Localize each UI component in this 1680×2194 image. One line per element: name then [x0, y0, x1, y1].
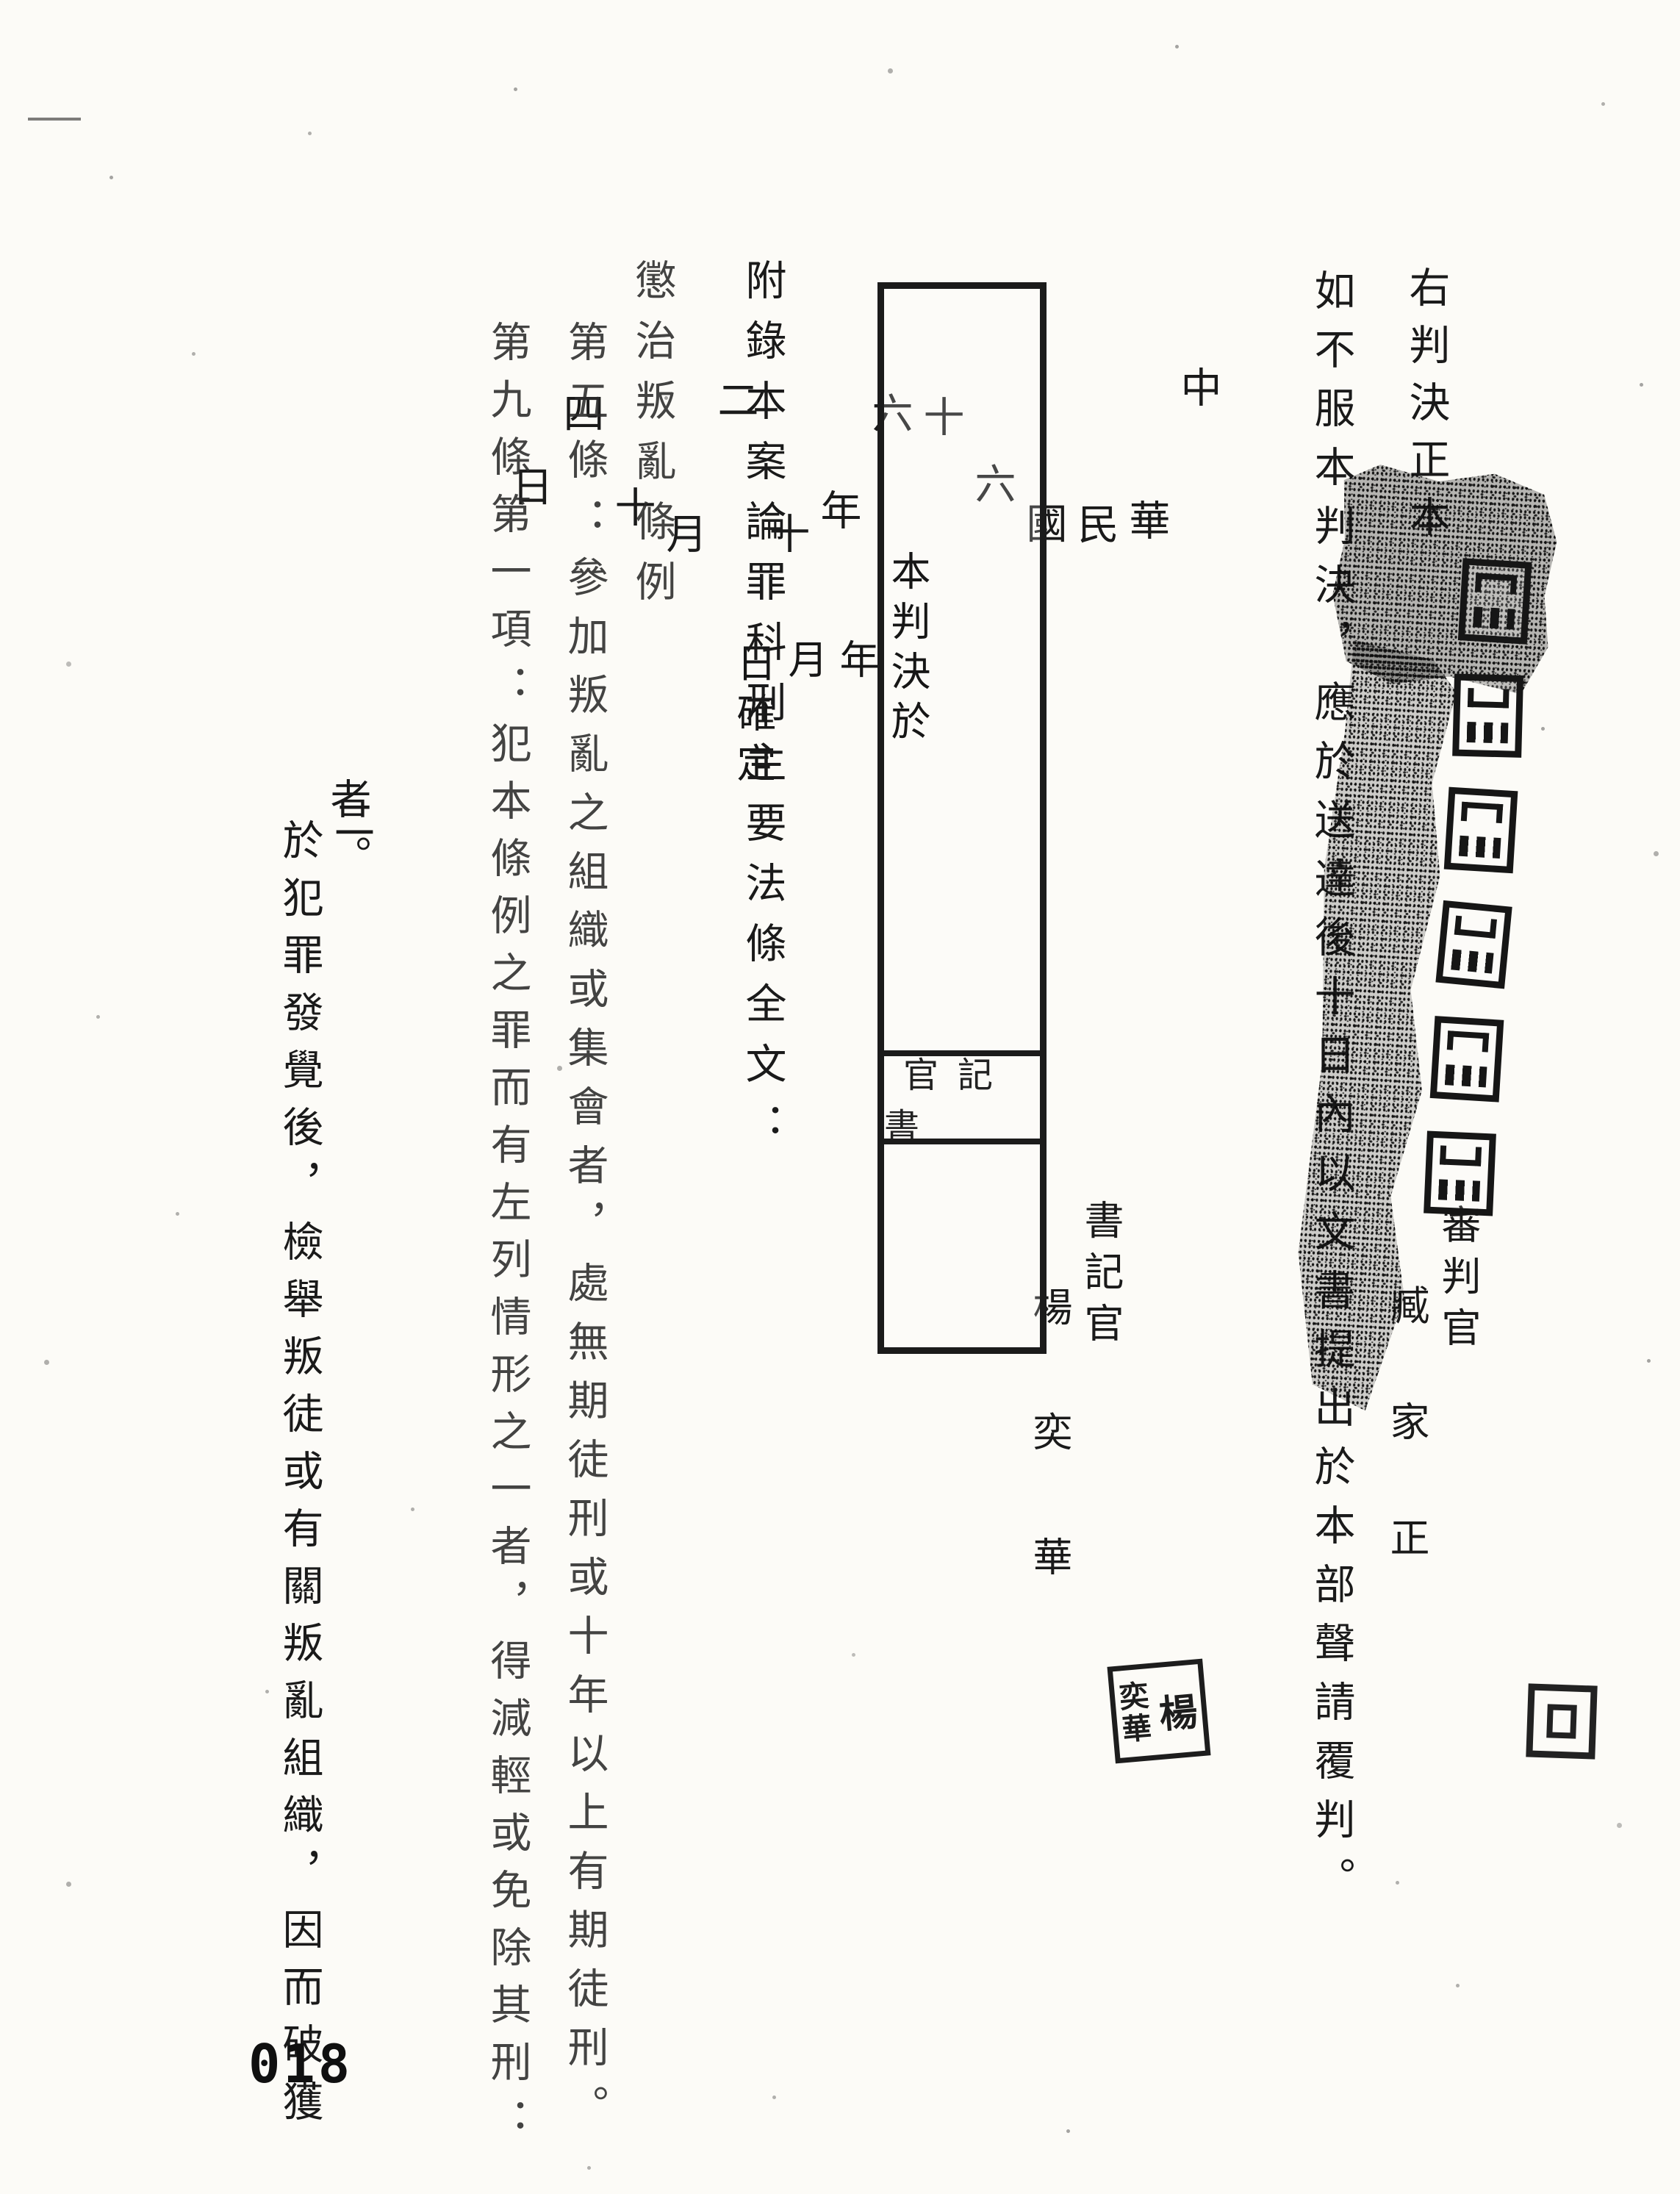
- article-9-item-2-continuation: 者。: [321, 778, 373, 892]
- judgment-date: 中 華 民 國 六 十 六 年 十 二 月 十 四 日: [1223, 270, 1274, 553]
- seal-script-glyph: [1444, 787, 1518, 874]
- article-9-intro: 第九條第一項：犯本條例之罪而有左列情形之一者，得減輕或免除其刑：: [481, 320, 533, 2155]
- finality-box: 本判決於 年 月 日確定 官記書: [877, 282, 1047, 1354]
- seal-script-glyph: [1424, 1131, 1496, 1216]
- clerk-seal-char: 楊: [1157, 1680, 1199, 1738]
- seal-script-glyph: [1435, 900, 1512, 989]
- scanned-judgment-page: { "page": { "number": "018" }, "closing"…: [0, 0, 1680, 2194]
- clerk-seal: 楊 奕 華: [1107, 1659, 1210, 1764]
- finality-month-label: 月: [781, 639, 828, 689]
- clerk-title: 書記官: [1077, 1200, 1124, 1354]
- box-clerk-label: 官記書: [884, 1059, 1040, 1136]
- article-5-text: 第五條：參加叛亂之組織或集會者，處無期徒刑或十年以上有期徒刑。: [559, 320, 610, 2143]
- clerk-seal-chars: 奕 華: [1118, 1679, 1153, 1746]
- finality-year-label: 年: [833, 639, 879, 689]
- article-9-item-2: 二 於犯罪發覺後，檢舉叛徒或有關叛亂組織，因而破獲: [376, 703, 428, 2137]
- seal-script-glyph: [1452, 674, 1523, 758]
- item-text: 於犯罪發覺後，檢舉叛徒或有關叛亂組織，因而破獲: [276, 819, 323, 2137]
- box-divider: [883, 1139, 1041, 1144]
- page-number: 018: [248, 2033, 353, 2095]
- statute-title: 懲治叛亂條例: [626, 259, 678, 620]
- date-char: 中: [1174, 366, 1221, 407]
- scan-specks: [0, 0, 2, 2]
- clerk-signature: 書記官 楊奕華: [1126, 1107, 1177, 1661]
- seal-script-glyph: [1430, 1016, 1504, 1103]
- appendix-heading: 附錄本案論罪科刑主要法條全文：: [736, 259, 788, 1163]
- clerk-seal-char: 華: [1121, 1712, 1153, 1746]
- finality-line: 本判決於 年 月 日確定: [933, 324, 984, 792]
- date-char: 民: [1071, 503, 1119, 544]
- seal-script-glyph: [1458, 558, 1532, 645]
- scan-artifact-dash: [28, 118, 81, 121]
- finality-prefix: 本判決於: [884, 551, 930, 750]
- judge-seal-icon: [1526, 1683, 1597, 1759]
- date-char: 華: [1122, 499, 1170, 540]
- clerk-seal-char: 奕: [1118, 1679, 1150, 1714]
